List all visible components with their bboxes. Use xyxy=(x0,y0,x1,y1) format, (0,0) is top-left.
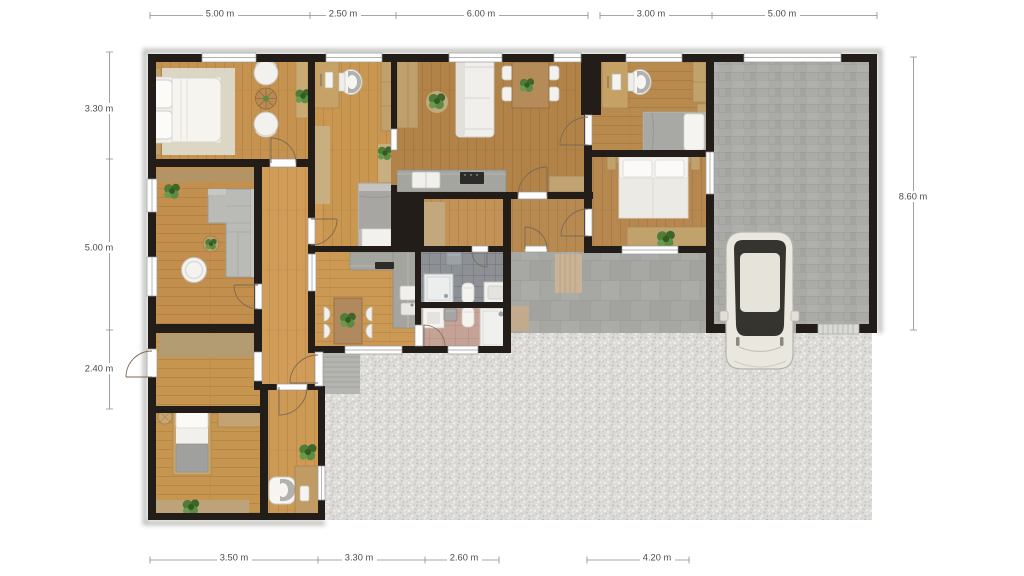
svg-text:3.00 m: 3.00 m xyxy=(637,9,666,19)
svg-text:5.00 m: 5.00 m xyxy=(206,9,235,19)
svg-text:3.30 m: 3.30 m xyxy=(345,553,374,563)
svg-text:2.40 m: 2.40 m xyxy=(85,364,114,374)
svg-text:3.50 m: 3.50 m xyxy=(220,553,249,563)
svg-text:8.60 m: 8.60 m xyxy=(899,192,928,202)
svg-text:5.00 m: 5.00 m xyxy=(768,9,797,19)
svg-text:3.30 m: 3.30 m xyxy=(85,104,114,114)
svg-text:2.60 m: 2.60 m xyxy=(450,553,479,563)
svg-text:6.00 m: 6.00 m xyxy=(467,9,496,19)
svg-text:5.00 m: 5.00 m xyxy=(85,243,114,253)
svg-text:2.50 m: 2.50 m xyxy=(329,9,358,19)
svg-text:4.20 m: 4.20 m xyxy=(643,553,672,563)
